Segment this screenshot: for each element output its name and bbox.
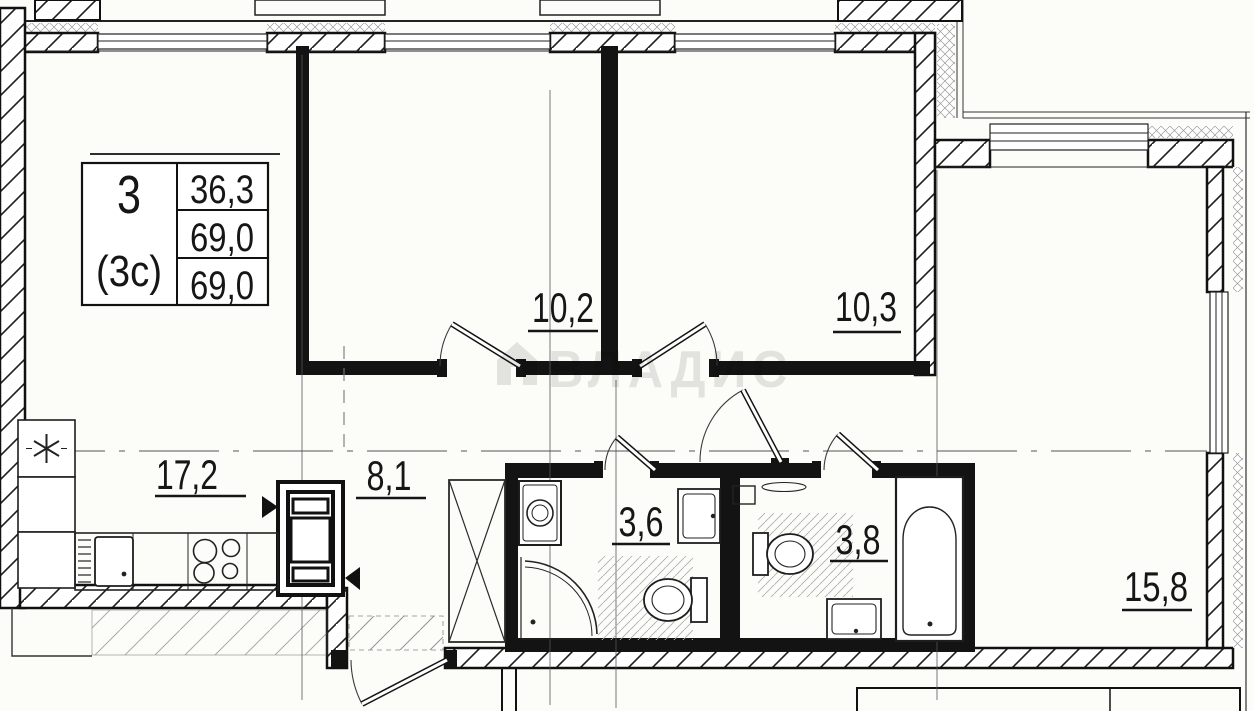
door-bedroom-1	[437, 324, 526, 377]
floor-plan: ВЛАДИС 3 (3c) 36,3 69,0 69,0 17,2 10,2 1…	[0, 0, 1254, 711]
kitchen-counter	[75, 533, 278, 590]
wall	[960, 463, 975, 650]
adjacent-structures	[35, 0, 1240, 711]
svg-text:10,3: 10,3	[835, 283, 897, 330]
wall	[601, 46, 618, 375]
wall	[300, 361, 438, 375]
toilet	[644, 578, 707, 622]
wall	[618, 361, 636, 375]
wall	[915, 33, 935, 375]
type-label: (3c)	[96, 247, 162, 296]
balcony-stub	[838, 0, 962, 21]
wall	[505, 463, 518, 650]
room-label-bedroom-1: 10,2	[528, 284, 598, 331]
wall	[740, 463, 814, 478]
vent-shaft	[262, 482, 360, 595]
total-area-value: 69,0	[190, 264, 254, 308]
wall	[1207, 453, 1223, 648]
door-toilet-bathroom	[812, 434, 881, 478]
axis-lines	[25, 55, 1207, 708]
doors	[331, 324, 881, 704]
wall	[445, 648, 1233, 668]
svg-text:15,8: 15,8	[1124, 563, 1188, 610]
wall	[550, 33, 675, 52]
neighbour-wall	[857, 688, 1240, 711]
door-hall-corridor	[700, 390, 781, 462]
wall	[935, 140, 990, 167]
shower	[521, 557, 597, 639]
bathtub	[896, 477, 963, 641]
insulation	[1233, 167, 1243, 292]
shelf	[762, 483, 806, 492]
insulation	[4, 23, 98, 33]
room-label-bedroom-2: 10,3	[833, 283, 901, 332]
window-room-top	[990, 124, 1148, 150]
entry-floor-hatch	[92, 610, 327, 655]
wall	[505, 463, 596, 478]
wall	[874, 463, 975, 478]
wall	[1207, 167, 1223, 292]
wardrobe	[449, 480, 505, 642]
room-label-toilet-bathroom: 3,8	[830, 516, 888, 563]
living-area-value: 36,3	[190, 168, 254, 212]
building-outline	[12, 608, 92, 656]
watermark: ВЛАДИС	[497, 341, 793, 399]
room-label-room: 15,8	[1122, 563, 1192, 610]
window-bedroom-2	[675, 34, 835, 49]
wet-zone-hatch	[598, 556, 693, 640]
wall-sink	[827, 599, 881, 639]
wall	[720, 463, 740, 650]
wall	[1148, 140, 1233, 167]
area-value: 69,0	[190, 216, 254, 260]
room-label-bathroom: 3,6	[612, 498, 670, 545]
wall	[267, 33, 385, 52]
wet-zone-hatch	[758, 513, 853, 597]
insulation	[937, 24, 955, 118]
info-table: 3 (3c) 36,3 69,0 69,0	[82, 154, 280, 308]
window-room-right	[1210, 292, 1228, 453]
wall	[327, 588, 347, 668]
cabinet	[18, 477, 75, 532]
svg-text:8,1: 8,1	[367, 452, 412, 499]
table-border	[82, 163, 268, 305]
wall-post	[771, 458, 789, 478]
insulation	[267, 23, 385, 33]
vent-arrow-icon	[262, 496, 278, 518]
window-bedroom-1	[385, 34, 550, 49]
door-bathroom	[594, 437, 659, 478]
wall	[651, 463, 730, 478]
bathroom-fixtures	[519, 481, 720, 639]
house-icon	[497, 342, 537, 385]
room-label-hallway: 8,1	[356, 452, 426, 499]
wall-sink	[678, 489, 720, 543]
balcony-stub	[255, 0, 385, 15]
windows	[98, 34, 1228, 453]
insulation	[1233, 453, 1243, 648]
svg-text:17,2: 17,2	[156, 451, 218, 498]
door-bedroom-2	[632, 324, 719, 377]
wall	[526, 361, 603, 375]
exterior-walls	[0, 0, 1250, 711]
room-label-kitchen-living: 17,2	[155, 451, 246, 498]
window-kitchen	[98, 34, 267, 49]
washing-machine	[519, 481, 561, 545]
kitchen-fixtures	[18, 420, 278, 590]
room-labels: 17,2 10,2 10,3 8,1 3,6 3,8 15,8	[155, 283, 1192, 610]
rooms-count: 3	[117, 165, 141, 225]
watermark-text: ВЛАДИС	[548, 341, 793, 399]
stove	[194, 540, 240, 584]
svg-text:3,8: 3,8	[836, 516, 881, 563]
wall	[2, 33, 98, 52]
balcony-stub	[540, 0, 660, 15]
cabinet	[18, 532, 75, 588]
wall	[296, 46, 309, 375]
vent-arrow-icon	[345, 567, 360, 590]
wall	[0, 8, 25, 608]
insulation	[835, 23, 935, 33]
insulation	[1148, 126, 1233, 138]
wall	[20, 585, 327, 608]
wall	[835, 33, 935, 52]
svg-text:10,2: 10,2	[532, 284, 594, 331]
boiler	[733, 486, 755, 504]
toilet	[753, 533, 813, 575]
entry-floor-hatch	[349, 616, 443, 650]
toilet-bathroom-fixtures	[733, 477, 963, 641]
fridge	[18, 420, 75, 477]
insulation	[550, 23, 675, 33]
floor-hatch-areas	[92, 513, 853, 655]
balcony-stub	[35, 0, 100, 20]
wall	[505, 638, 975, 652]
kitchen-sink	[78, 537, 133, 586]
interior-walls	[296, 46, 975, 652]
wall	[719, 361, 930, 375]
svg-text:3,6: 3,6	[619, 498, 664, 545]
entrance-door	[331, 650, 457, 704]
